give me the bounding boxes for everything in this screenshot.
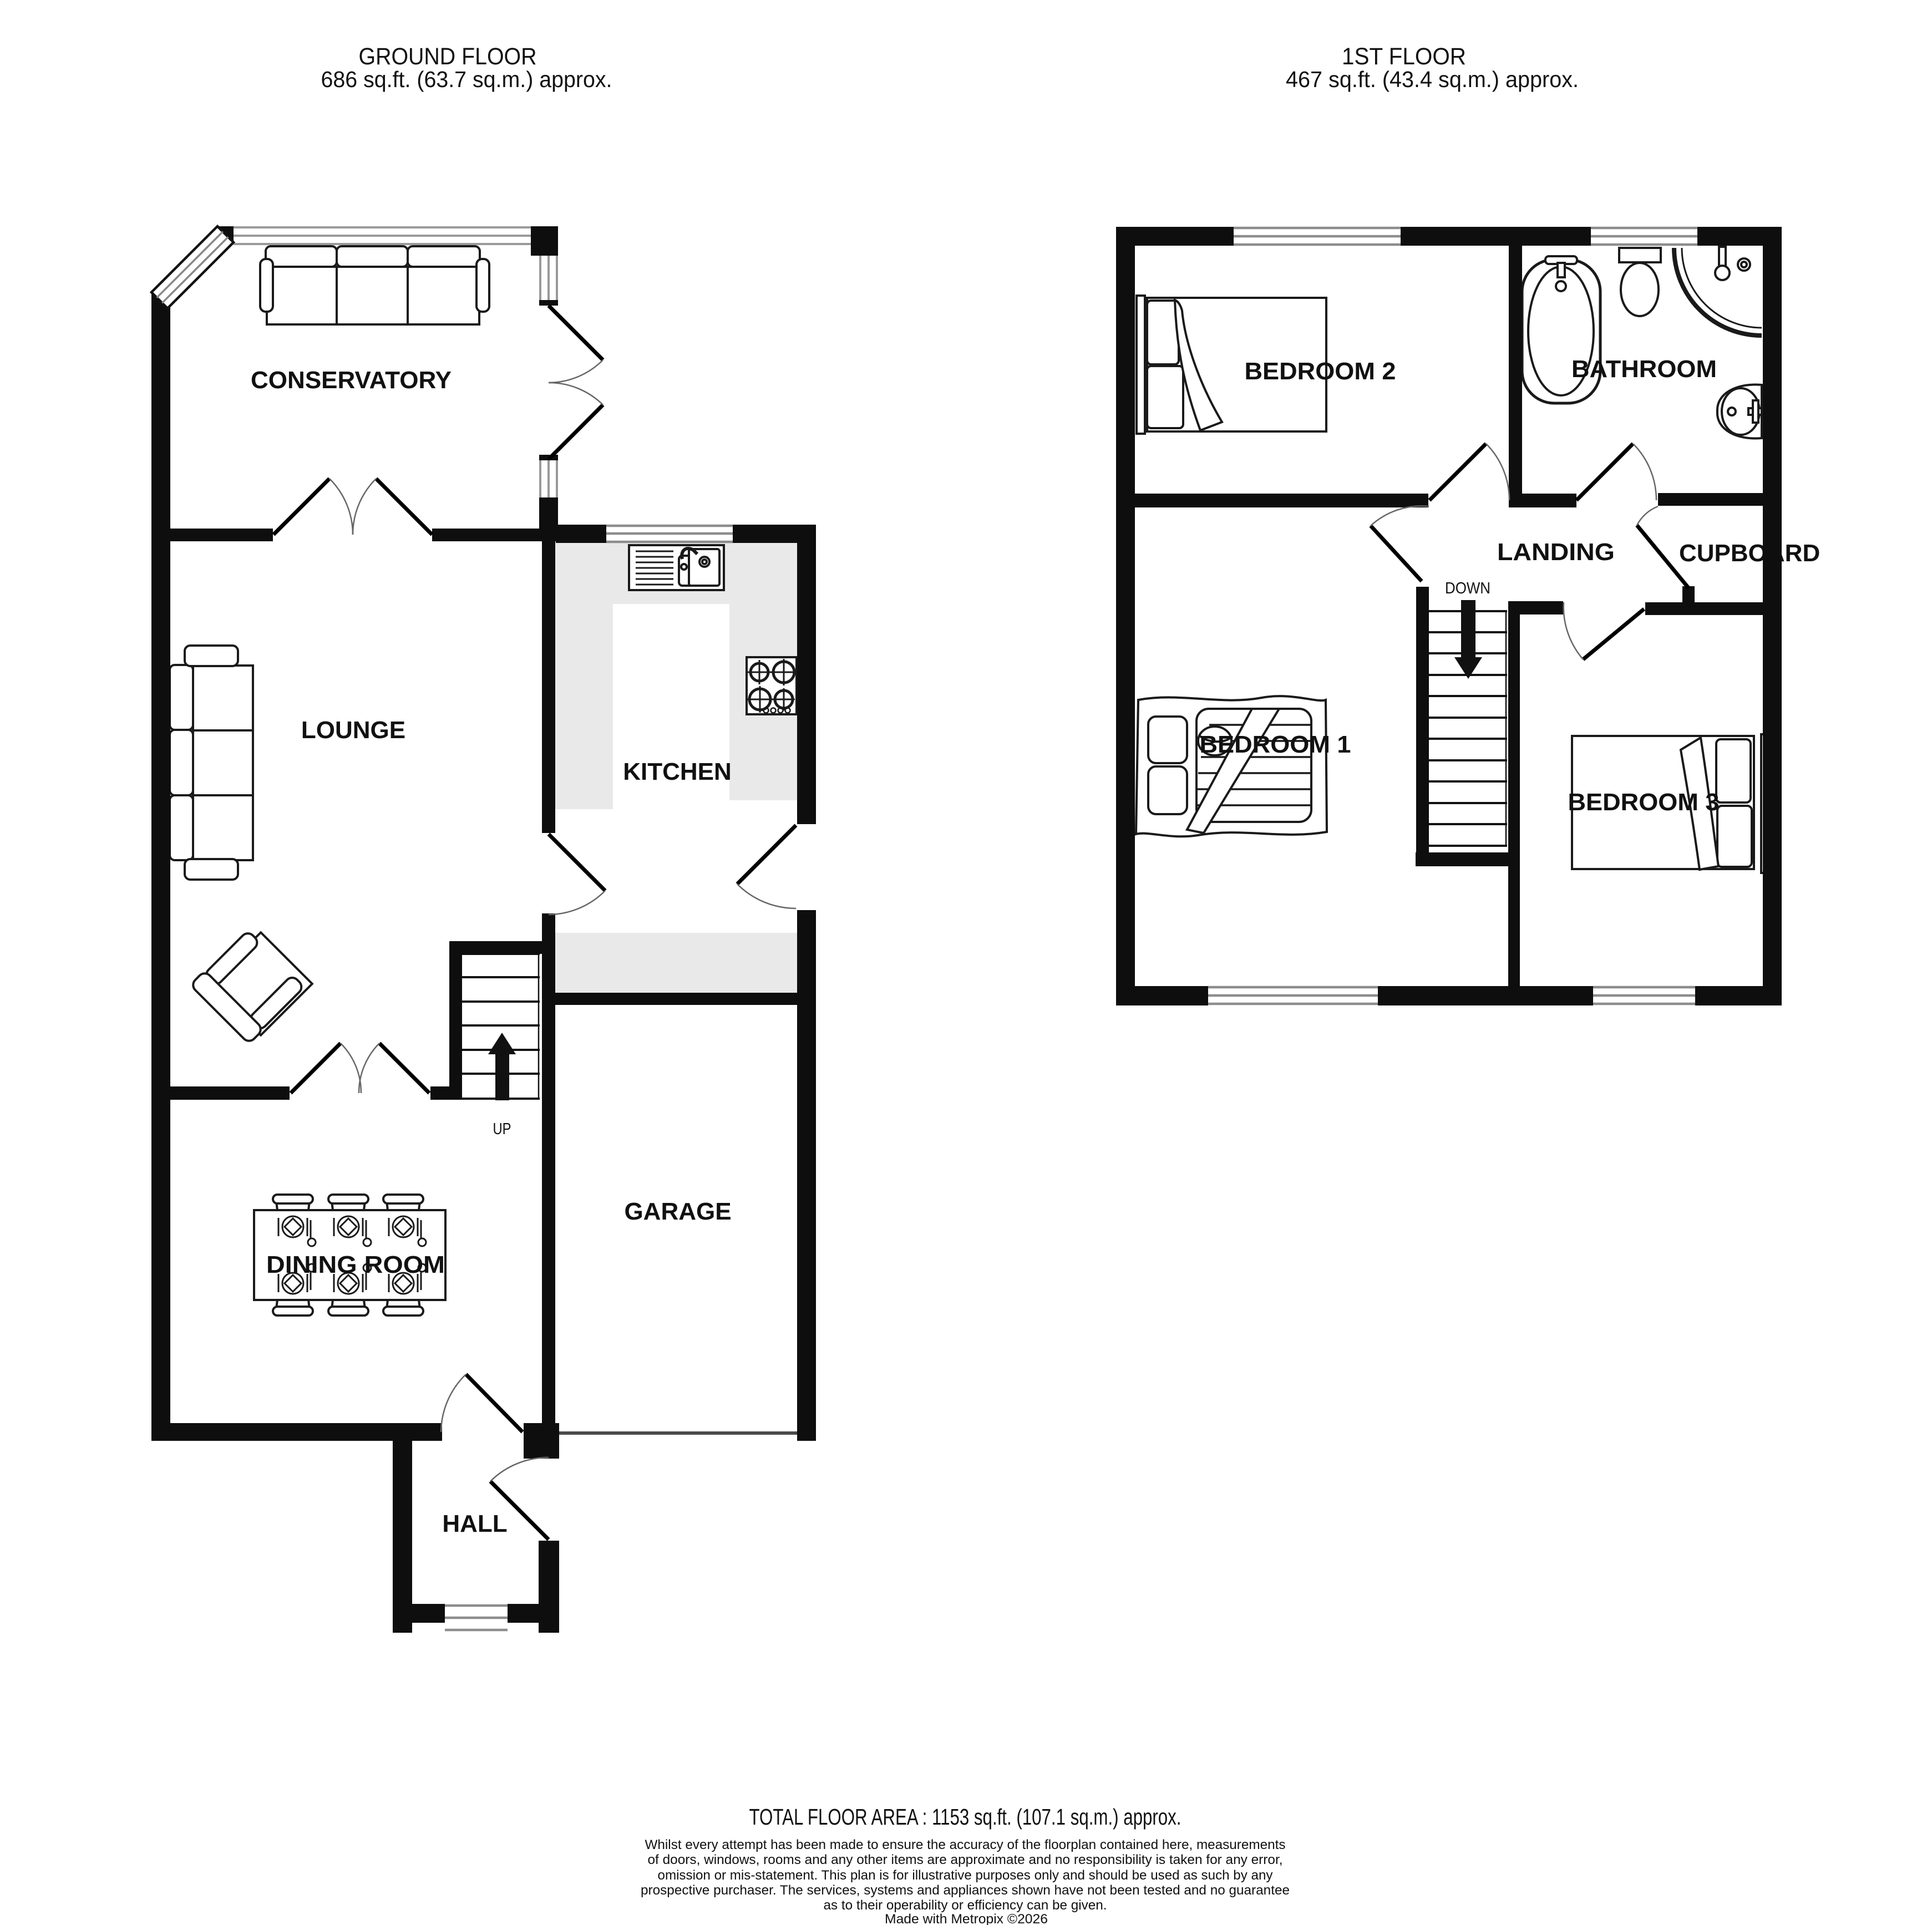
svg-text:LANDING: LANDING bbox=[1497, 539, 1615, 566]
svg-text:BEDROOM 2: BEDROOM 2 bbox=[1245, 358, 1396, 385]
svg-text:BATHROOM: BATHROOM bbox=[1571, 355, 1717, 383]
svg-text:467 sq.ft. (43.4 sq.m.) approx: 467 sq.ft. (43.4 sq.m.) approx. bbox=[1286, 67, 1579, 92]
svg-text:TOTAL FLOOR AREA : 1153 sq.ft.: TOTAL FLOOR AREA : 1153 sq.ft. (107.1 sq… bbox=[749, 1804, 1181, 1830]
svg-text:BEDROOM 1: BEDROOM 1 bbox=[1200, 731, 1351, 758]
svg-text:LOUNGE: LOUNGE bbox=[301, 717, 405, 744]
svg-text:omission or mis-statement. Thi: omission or mis-statement. This plan is … bbox=[658, 1868, 1274, 1883]
svg-text:DINING ROOM: DINING ROOM bbox=[266, 1251, 445, 1278]
svg-text:of doors, windows, rooms and a: of doors, windows, rooms and any other i… bbox=[648, 1852, 1283, 1867]
svg-text:HALL: HALL bbox=[442, 1510, 507, 1537]
svg-text:Made with Metropix ©2026: Made with Metropix ©2026 bbox=[885, 1912, 1048, 1925]
svg-text:686 sq.ft. (63.7 sq.m.) approx: 686 sq.ft. (63.7 sq.m.) approx. bbox=[321, 67, 612, 92]
svg-text:GROUND FLOOR: GROUND FLOOR bbox=[359, 43, 537, 70]
svg-text:CUPBOARD: CUPBOARD bbox=[1679, 540, 1820, 567]
svg-text:1ST FLOOR: 1ST FLOOR bbox=[1342, 43, 1466, 70]
svg-text:KITCHEN: KITCHEN bbox=[623, 758, 732, 785]
svg-text:GARAGE: GARAGE bbox=[624, 1198, 731, 1225]
svg-text:UP: UP bbox=[493, 1120, 511, 1138]
svg-text:DOWN: DOWN bbox=[1445, 580, 1490, 597]
svg-text:BEDROOM 3: BEDROOM 3 bbox=[1568, 789, 1720, 816]
svg-text:prospective purchaser. The ser: prospective purchaser. The services, sys… bbox=[641, 1883, 1290, 1898]
svg-text:as to their operability or eff: as to their operability or efficiency ca… bbox=[824, 1898, 1107, 1913]
svg-text:CONSERVATORY: CONSERVATORY bbox=[251, 367, 452, 394]
svg-text:Whilst every attempt has been: Whilst every attempt has been made to en… bbox=[645, 1837, 1286, 1852]
